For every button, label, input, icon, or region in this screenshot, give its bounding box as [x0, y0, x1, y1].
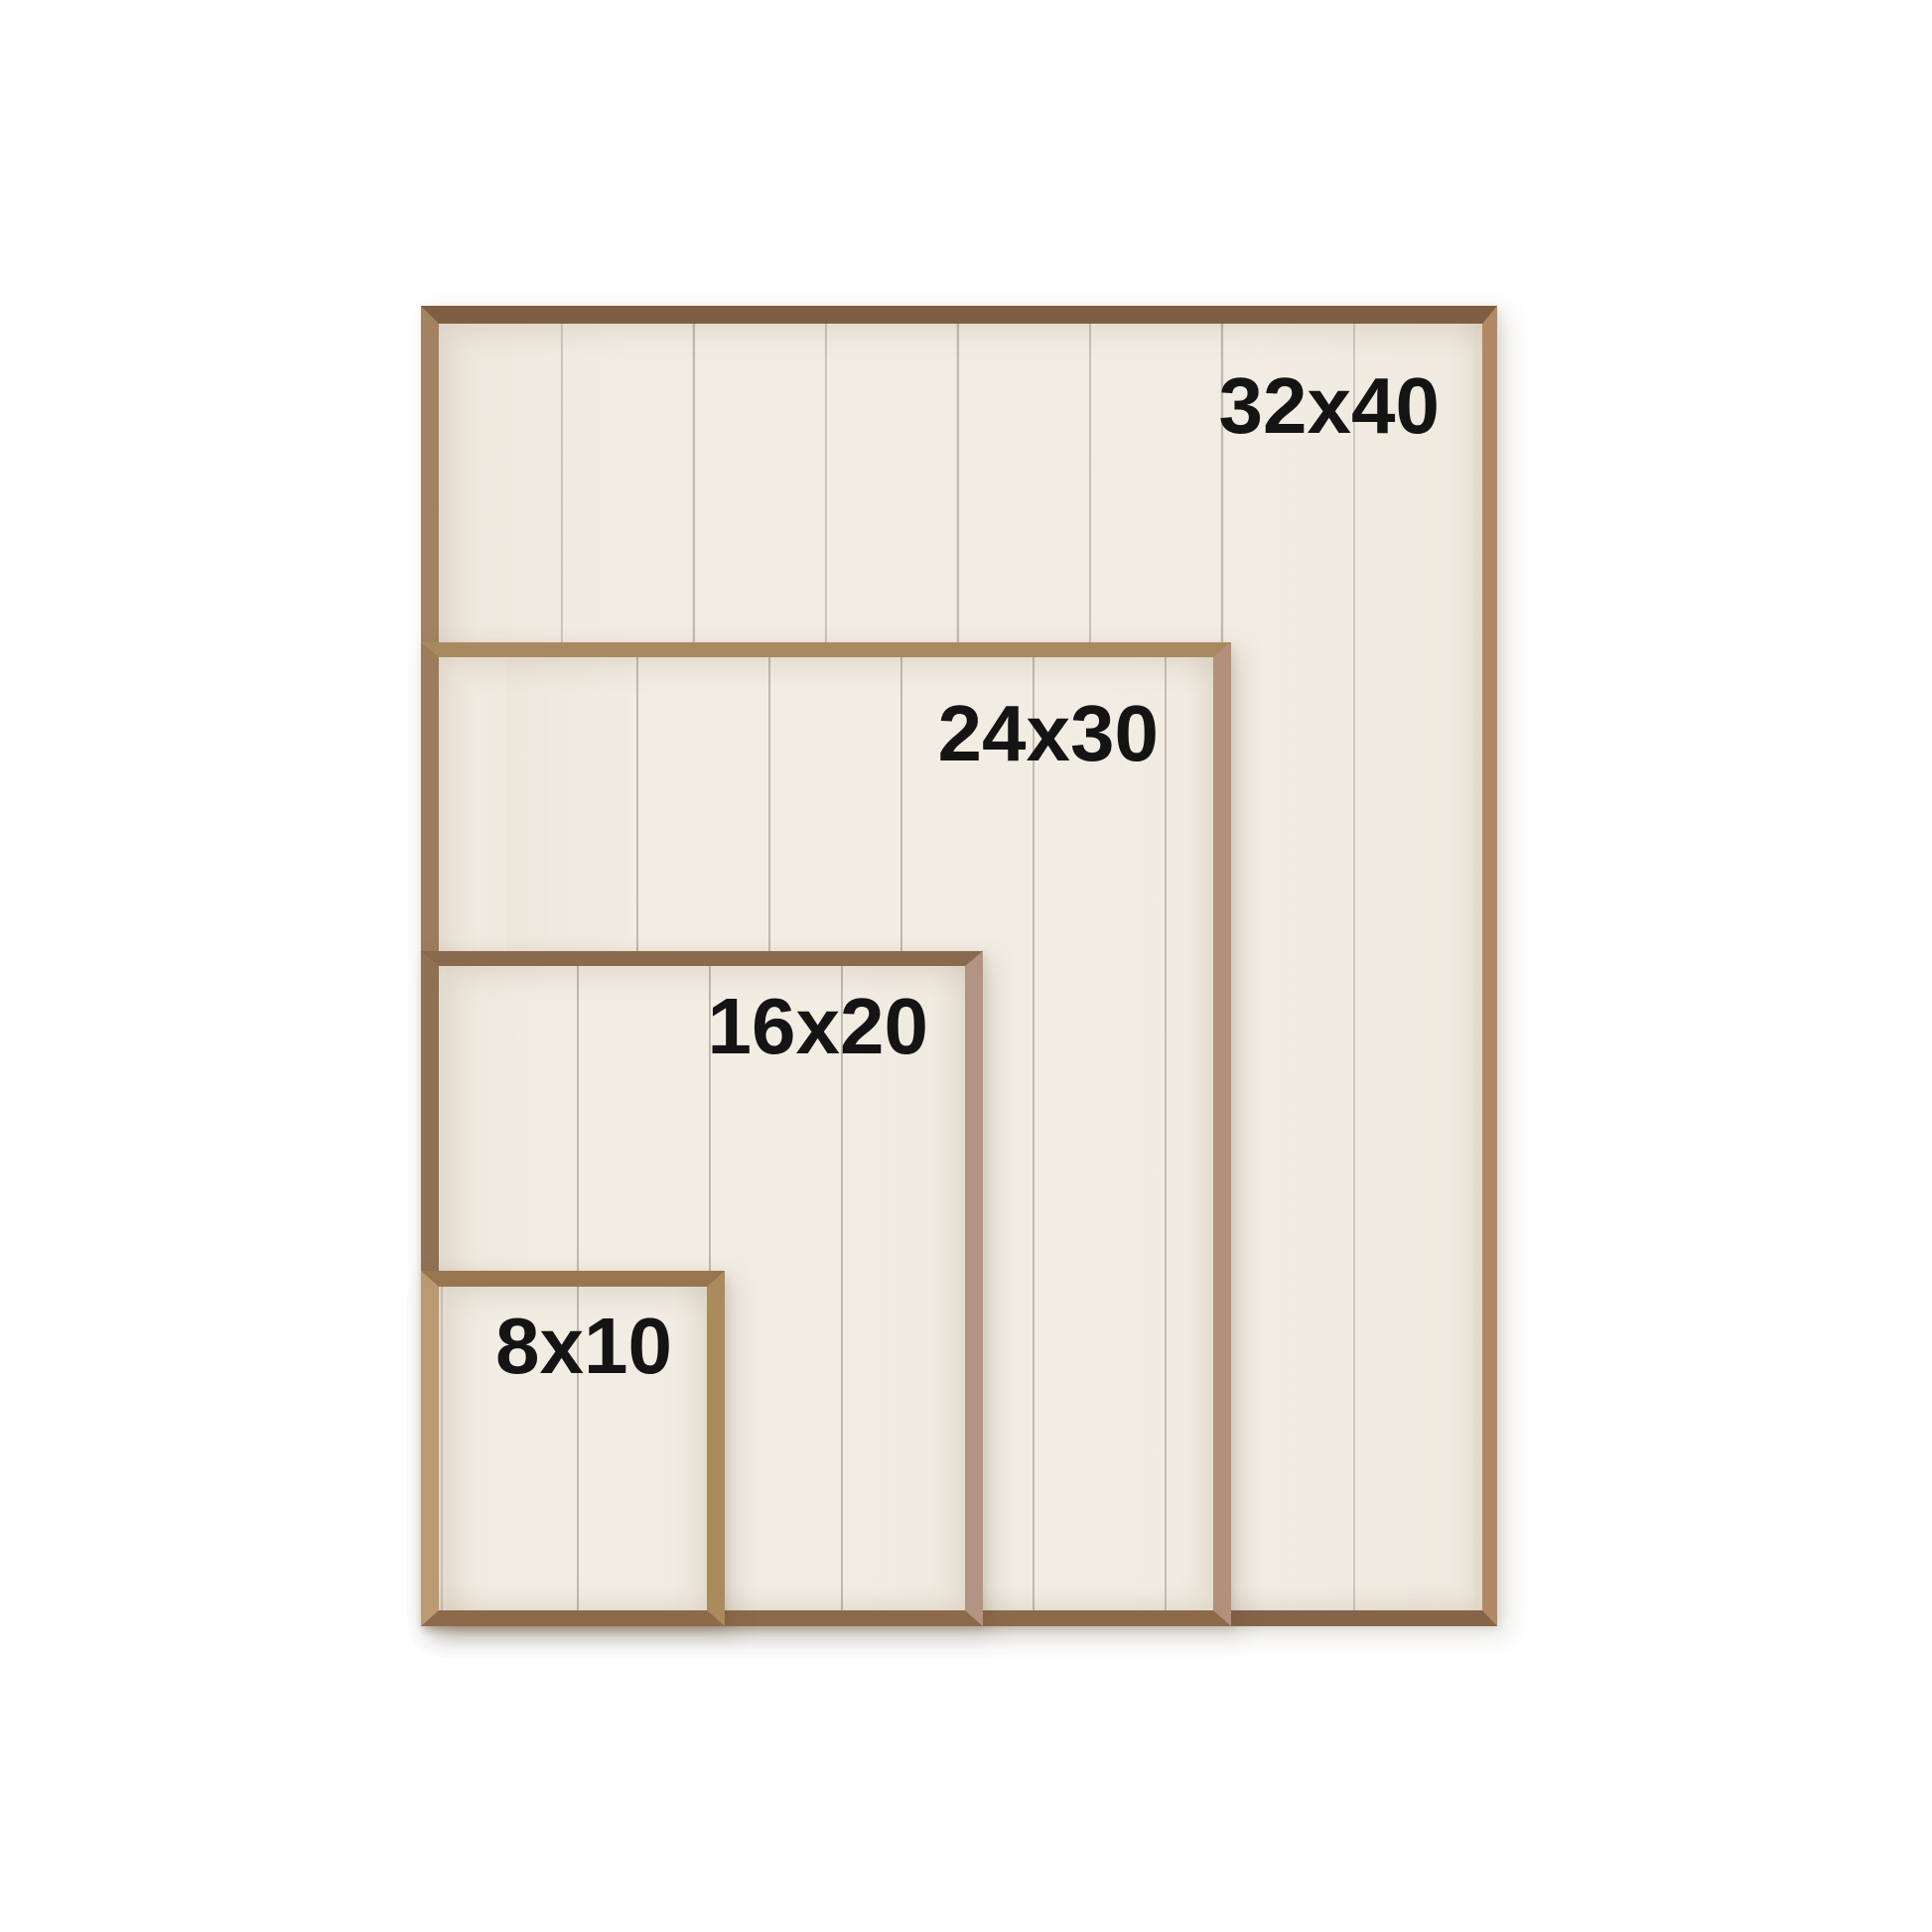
size-label-24x30: 24x30	[938, 694, 1159, 773]
size-label-16x20: 16x20	[708, 987, 928, 1066]
size-guide-image: 32x40 24x30 16x20 8x10	[0, 0, 1932, 1932]
size-label-32x40: 32x40	[1219, 366, 1440, 446]
frame-8x10: 8x10	[421, 1271, 725, 1626]
size-label-8x10: 8x10	[495, 1307, 672, 1386]
